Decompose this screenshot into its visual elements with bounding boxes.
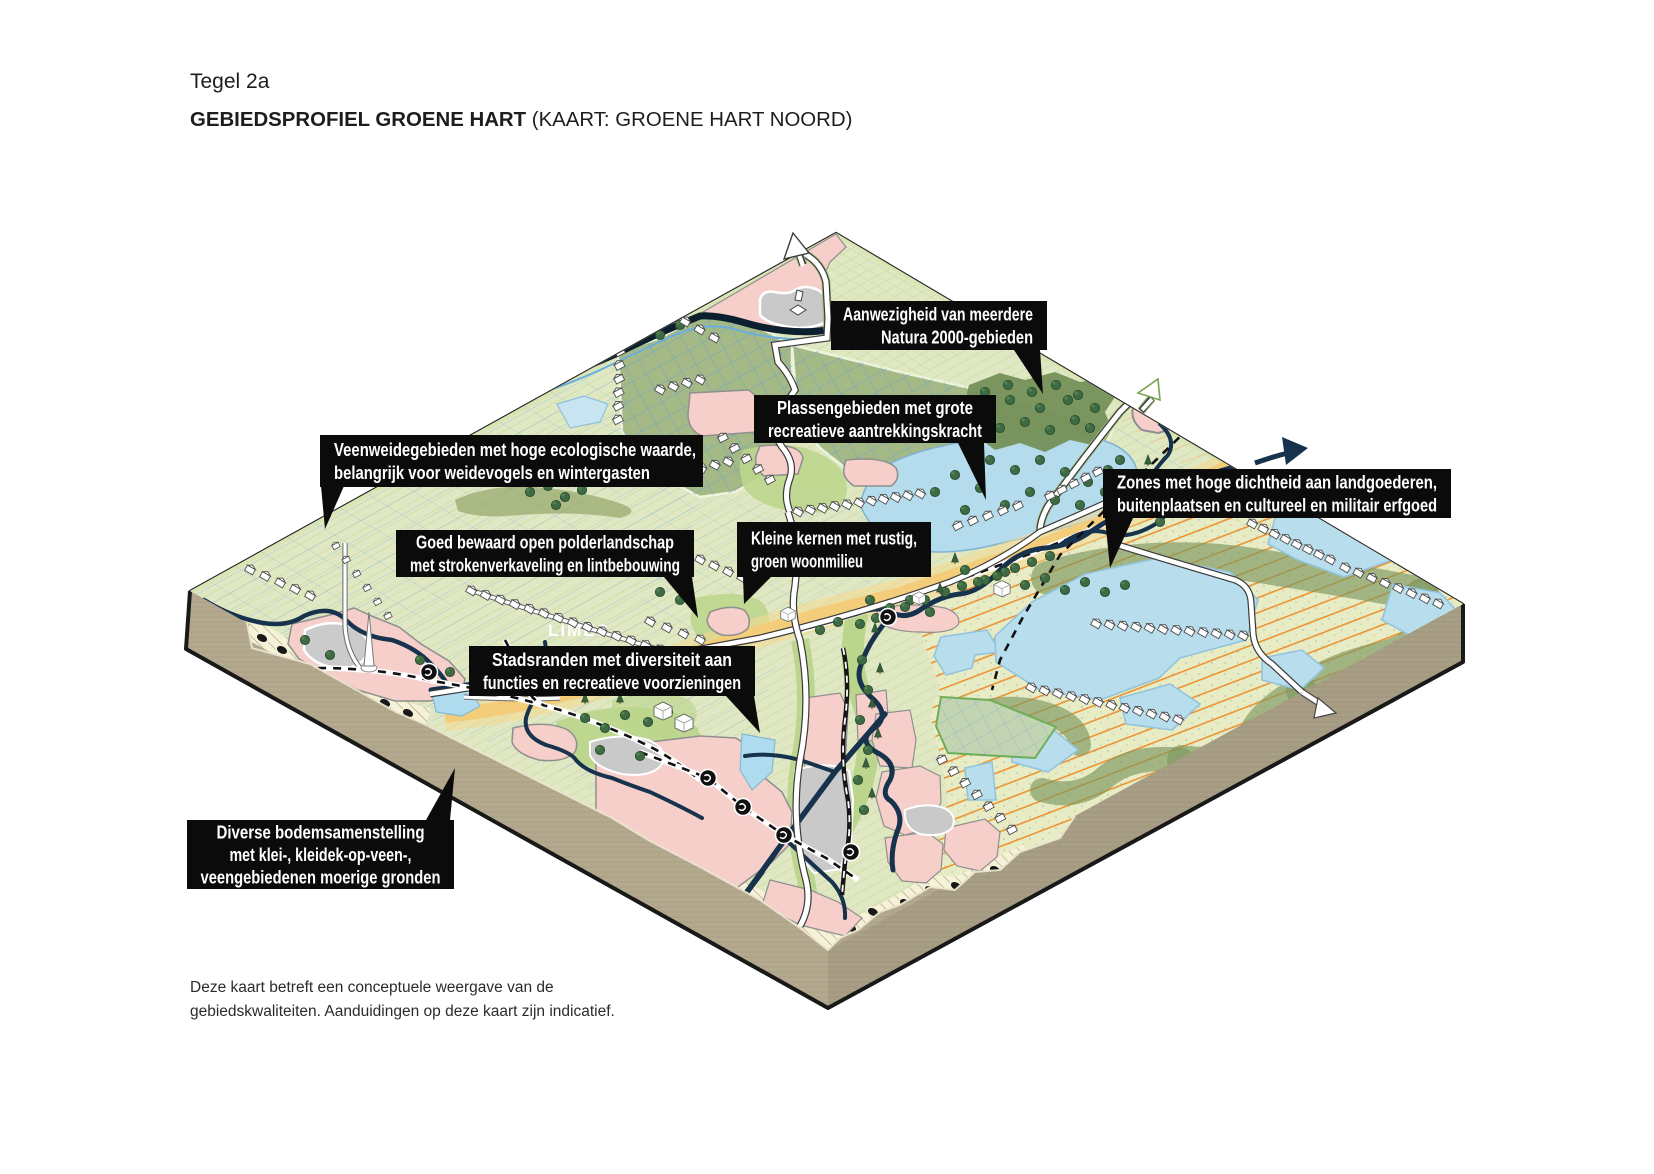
svg-text:gebiedskwaliteiten. Aanduiding: gebiedskwaliteiten. Aanduidingen op deze… bbox=[190, 1003, 615, 1020]
svg-text:belangrijk voor weidevogels en: belangrijk voor weidevogels en wintergas… bbox=[334, 462, 650, 483]
svg-text:functies en recreatieve voorzi: functies en recreatieve voorzieningen bbox=[483, 672, 741, 693]
svg-text:recreatieve aantrekkingskracht: recreatieve aantrekkingskracht bbox=[768, 420, 982, 441]
svg-text:veengebiedenen moerige gronden: veengebiedenen moerige gronden bbox=[201, 867, 441, 888]
svg-text:GEBIEDSPROFIEL GROENE HART (KA: GEBIEDSPROFIEL GROENE HART (KAART: GROEN… bbox=[190, 109, 852, 131]
svg-text:Veenweidegebieden met hoge eco: Veenweidegebieden met hoge ecologische w… bbox=[334, 439, 696, 460]
svg-text:met klei-, kleidek-op-veen-,: met klei-, kleidek-op-veen-, bbox=[230, 844, 412, 865]
svg-text:met strokenverkaveling en lint: met strokenverkaveling en lintbebouwing bbox=[410, 555, 680, 576]
svg-text:Stadsranden met diversiteit aa: Stadsranden met diversiteit aan bbox=[492, 649, 732, 670]
svg-text:Goed bewaard open polderlandsc: Goed bewaard open polderlandschap bbox=[416, 532, 674, 553]
svg-text:buitenplaatsen en cultureel en: buitenplaatsen en cultureel en militair … bbox=[1117, 495, 1437, 516]
svg-text:Kleine kernen met rustig,: Kleine kernen met rustig, bbox=[751, 528, 917, 549]
svg-text:Tegel 2a: Tegel 2a bbox=[190, 70, 270, 93]
svg-text:groen woonmilieu: groen woonmilieu bbox=[751, 551, 863, 572]
svg-text:Plassengebieden met grote: Plassengebieden met grote bbox=[777, 397, 973, 418]
svg-text:Natura 2000-gebieden: Natura 2000-gebieden bbox=[881, 327, 1033, 348]
svg-text:Aanwezigheid van meerdere: Aanwezigheid van meerdere bbox=[843, 304, 1033, 325]
svg-text:Zones met hoge dichtheid aan l: Zones met hoge dichtheid aan landgoedere… bbox=[1117, 472, 1437, 493]
svg-text:Diverse bodemsamenstelling: Diverse bodemsamenstelling bbox=[217, 822, 425, 843]
svg-text:Deze kaart betreft een concept: Deze kaart betreft een conceptuele weerg… bbox=[190, 979, 554, 996]
